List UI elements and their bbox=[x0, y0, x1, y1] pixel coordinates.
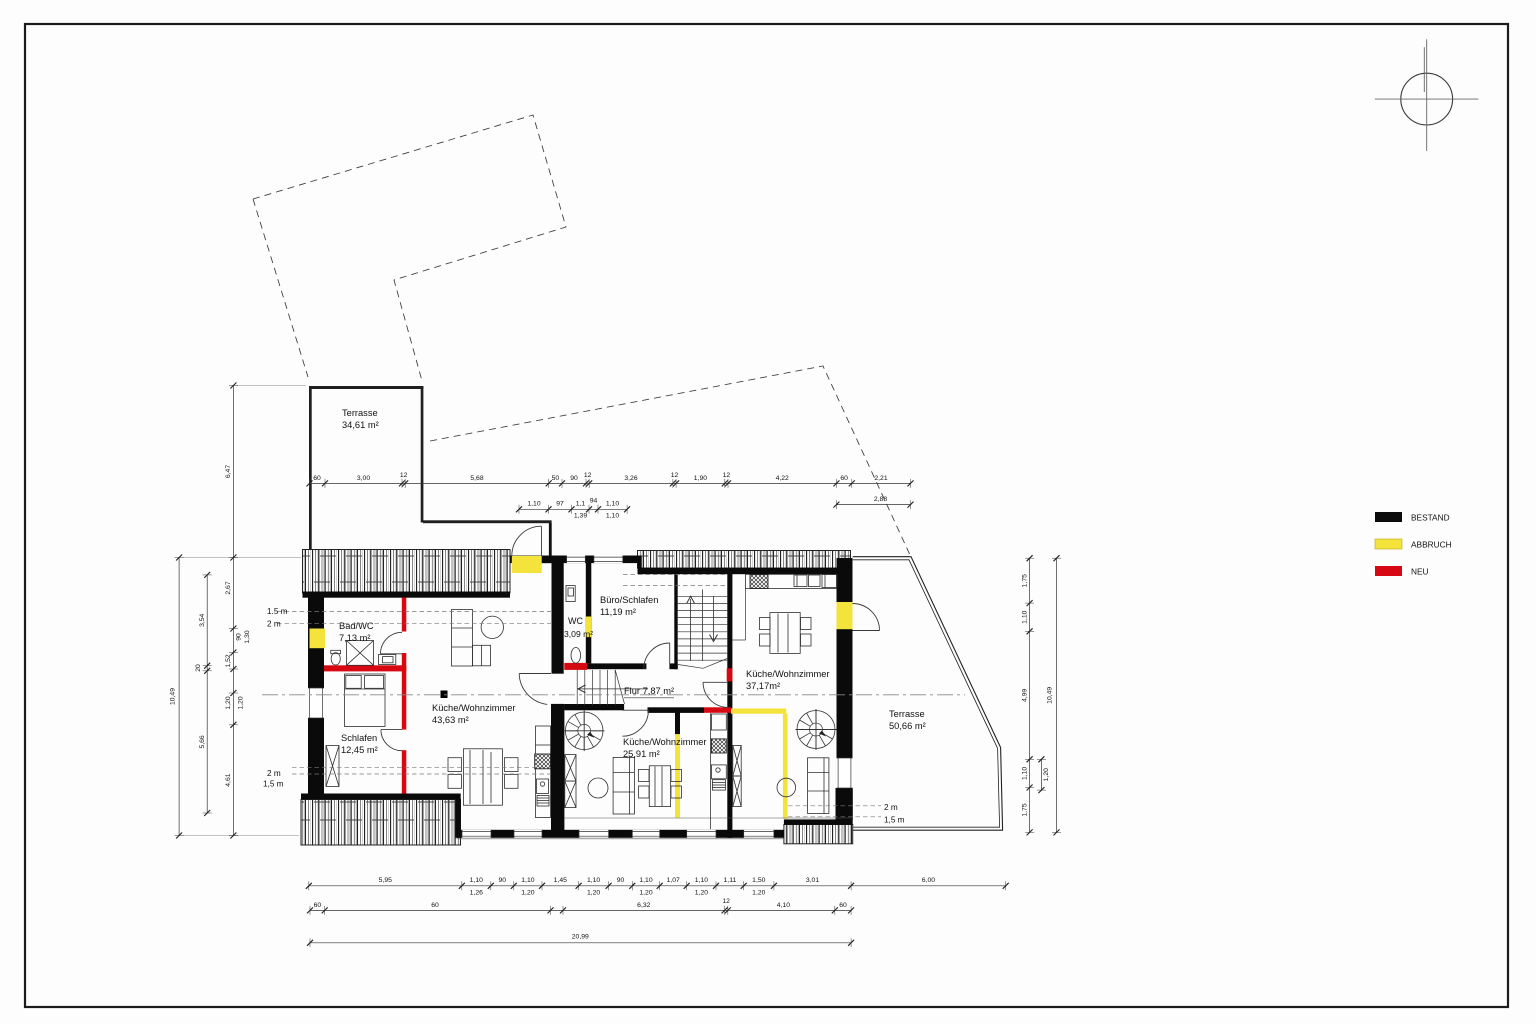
svg-text:BESTAND: BESTAND bbox=[1411, 513, 1450, 523]
svg-text:4,10: 4,10 bbox=[777, 902, 790, 909]
svg-text:1,20: 1,20 bbox=[225, 696, 232, 709]
svg-text:1,75: 1,75 bbox=[1021, 803, 1028, 816]
svg-text:11,19 m²: 11,19 m² bbox=[600, 607, 636, 617]
svg-text:1,26: 1,26 bbox=[470, 890, 483, 897]
svg-text:2,88: 2,88 bbox=[874, 496, 887, 503]
svg-text:43,63 m²: 43,63 m² bbox=[432, 715, 469, 725]
svg-text:1,10: 1,10 bbox=[606, 501, 619, 508]
svg-text:1,5 m: 1,5 m bbox=[263, 780, 284, 789]
svg-text:1,50: 1,50 bbox=[752, 877, 765, 884]
svg-text:12: 12 bbox=[584, 472, 592, 479]
svg-text:50,66 m²: 50,66 m² bbox=[889, 721, 926, 731]
svg-text:Schlafen: Schlafen bbox=[341, 733, 377, 743]
svg-text:97: 97 bbox=[556, 501, 564, 508]
svg-text:1,10: 1,10 bbox=[1021, 767, 1028, 780]
svg-text:34,61 m²: 34,61 m² bbox=[342, 420, 379, 430]
svg-text:1,10: 1,10 bbox=[470, 877, 483, 884]
svg-text:1,10: 1,10 bbox=[1021, 610, 1028, 623]
svg-text:60: 60 bbox=[840, 475, 848, 482]
svg-text:Bad/WC: Bad/WC bbox=[339, 621, 374, 631]
svg-text:6,00: 6,00 bbox=[922, 877, 935, 884]
svg-text:7,13 m²: 7,13 m² bbox=[339, 633, 371, 643]
svg-text:1.5 m: 1.5 m bbox=[267, 607, 288, 616]
svg-text:6,47: 6,47 bbox=[225, 465, 232, 478]
svg-text:1,11: 1,11 bbox=[724, 877, 737, 884]
svg-text:4,61: 4,61 bbox=[225, 773, 232, 786]
svg-text:ABBRUCH: ABBRUCH bbox=[1411, 540, 1452, 550]
svg-text:90: 90 bbox=[570, 475, 578, 482]
svg-text:37,17m²: 37,17m² bbox=[746, 681, 780, 691]
svg-text:12: 12 bbox=[723, 472, 731, 479]
svg-text:1,39: 1,39 bbox=[574, 513, 587, 520]
svg-text:3,09 m²: 3,09 m² bbox=[564, 629, 593, 639]
svg-text:3,01: 3,01 bbox=[806, 877, 819, 884]
svg-text:1,07: 1,07 bbox=[667, 877, 680, 884]
svg-text:1,90: 1,90 bbox=[694, 475, 707, 482]
svg-text:1,5 m: 1,5 m bbox=[884, 816, 905, 825]
svg-text:3,00: 3,00 bbox=[357, 475, 370, 482]
svg-text:1,20: 1,20 bbox=[1043, 768, 1050, 781]
svg-text:10,49: 10,49 bbox=[1047, 687, 1054, 704]
svg-text:60: 60 bbox=[431, 902, 439, 909]
svg-text:Küche/Wohnzimmer: Küche/Wohnzimmer bbox=[432, 703, 516, 713]
svg-text:12: 12 bbox=[671, 472, 679, 479]
svg-text:1,1: 1,1 bbox=[576, 501, 586, 508]
svg-text:5,68: 5,68 bbox=[470, 475, 483, 482]
svg-text:2,67: 2,67 bbox=[225, 581, 232, 594]
svg-text:1,10: 1,10 bbox=[639, 877, 652, 884]
svg-text:20: 20 bbox=[195, 664, 202, 672]
svg-text:1,20: 1,20 bbox=[521, 890, 534, 897]
svg-text:10,49: 10,49 bbox=[170, 688, 177, 705]
svg-text:25,91 m²: 25,91 m² bbox=[623, 749, 660, 759]
svg-text:4,99: 4,99 bbox=[1021, 688, 1028, 701]
svg-text:60: 60 bbox=[839, 902, 847, 909]
svg-text:3,54: 3,54 bbox=[199, 613, 206, 626]
svg-text:WC: WC bbox=[568, 616, 583, 626]
svg-text:1,10: 1,10 bbox=[521, 877, 534, 884]
svg-text:Büro/Schlafen: Büro/Schlafen bbox=[600, 595, 658, 605]
svg-text:90: 90 bbox=[617, 877, 625, 884]
svg-text:94: 94 bbox=[590, 498, 598, 505]
svg-text:3,26: 3,26 bbox=[624, 475, 637, 482]
svg-text:Küche/Wohnzimmer: Küche/Wohnzimmer bbox=[623, 737, 707, 747]
svg-text:2 m: 2 m bbox=[884, 803, 898, 812]
svg-text:1,20: 1,20 bbox=[587, 890, 600, 897]
svg-text:2 m: 2 m bbox=[267, 619, 281, 628]
svg-text:1,52: 1,52 bbox=[225, 654, 232, 667]
svg-text:1,10: 1,10 bbox=[527, 501, 540, 508]
svg-text:1,10: 1,10 bbox=[587, 877, 600, 884]
svg-text:2 m: 2 m bbox=[267, 769, 281, 778]
svg-text:12: 12 bbox=[722, 898, 730, 905]
svg-text:1,30: 1,30 bbox=[244, 630, 251, 643]
svg-text:12: 12 bbox=[400, 472, 408, 479]
svg-text:Terrasse: Terrasse bbox=[889, 709, 925, 719]
svg-text:1,10: 1,10 bbox=[695, 877, 708, 884]
svg-text:6,32: 6,32 bbox=[637, 902, 650, 909]
svg-text:Terrasse: Terrasse bbox=[342, 408, 378, 418]
svg-text:50: 50 bbox=[552, 475, 560, 482]
svg-text:5,95: 5,95 bbox=[379, 877, 392, 884]
svg-text:90: 90 bbox=[499, 877, 507, 884]
svg-text:1,20: 1,20 bbox=[639, 890, 652, 897]
svg-text:1,75: 1,75 bbox=[1021, 574, 1028, 587]
svg-text:60: 60 bbox=[314, 902, 322, 909]
svg-text:NEU: NEU bbox=[1411, 567, 1429, 577]
svg-text:90: 90 bbox=[236, 633, 243, 641]
svg-text:5,66: 5,66 bbox=[199, 735, 206, 748]
svg-text:1,10: 1,10 bbox=[606, 513, 619, 520]
svg-text:1,20: 1,20 bbox=[238, 696, 245, 709]
svg-text:1,20: 1,20 bbox=[752, 890, 765, 897]
svg-text:Küche/Wohnzimmer: Küche/Wohnzimmer bbox=[746, 669, 830, 679]
svg-text:1,20: 1,20 bbox=[695, 890, 708, 897]
svg-text:2,21: 2,21 bbox=[874, 475, 887, 482]
svg-text:60: 60 bbox=[313, 475, 321, 482]
svg-text:12,45 m²: 12,45 m² bbox=[341, 745, 378, 755]
svg-text:4,22: 4,22 bbox=[776, 475, 789, 482]
svg-text:20,99: 20,99 bbox=[572, 934, 589, 941]
svg-text:1,45: 1,45 bbox=[554, 877, 567, 884]
